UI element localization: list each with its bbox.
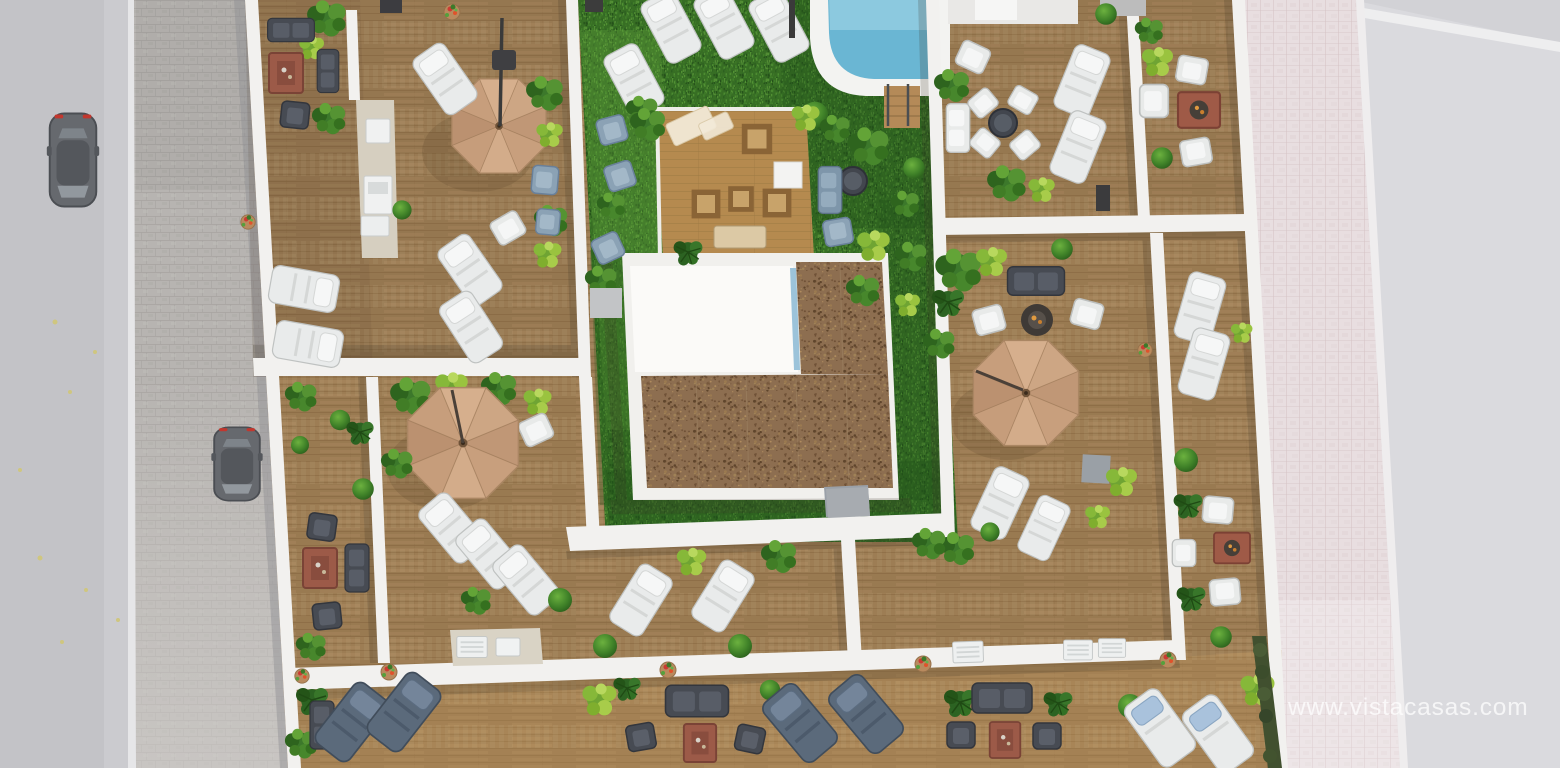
svg-text:www.vistacasas.com: www.vistacasas.com [1287,694,1528,721]
